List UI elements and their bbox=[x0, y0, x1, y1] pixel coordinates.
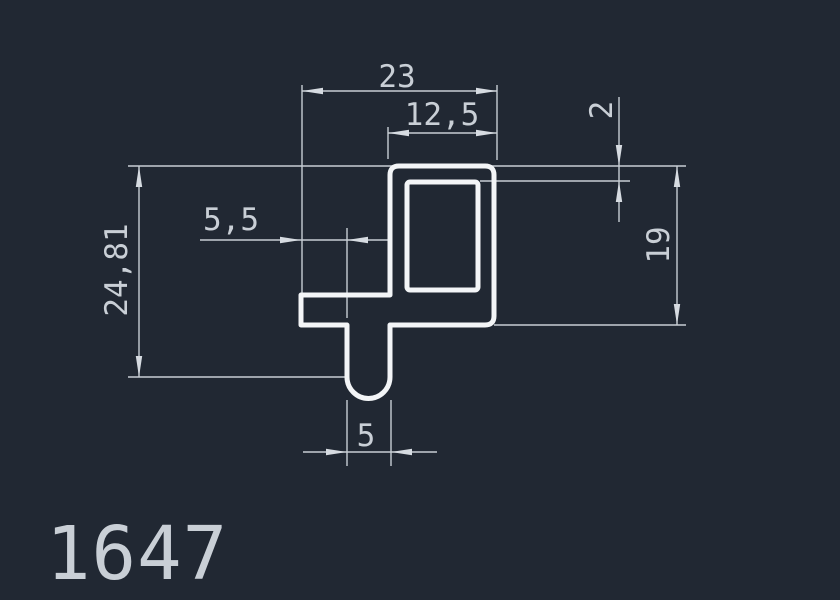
drawing-number: 1647 bbox=[46, 511, 228, 597]
dimension-label: 19 bbox=[641, 226, 677, 263]
dimension-wall-thickness: 2 bbox=[480, 97, 630, 222]
arrowhead-down bbox=[674, 304, 680, 325]
profile-outline bbox=[301, 166, 494, 399]
arrowhead-left bbox=[280, 237, 301, 243]
dimension-stem-width: 5 bbox=[303, 400, 437, 466]
dimension-label: 5,5 bbox=[203, 202, 259, 238]
technical-drawing-svg: 23 12,5 5,5 2 19 24,81 bbox=[0, 0, 840, 600]
arrowhead-right bbox=[347, 237, 368, 243]
arrowhead-right bbox=[476, 88, 497, 94]
dimension-label: 24,81 bbox=[99, 223, 135, 316]
arrowhead-left bbox=[391, 449, 412, 455]
arrowhead-down bbox=[616, 145, 622, 166]
dimension-label: 23 bbox=[378, 59, 415, 95]
dimension-total-height: 24,81 bbox=[99, 166, 142, 377]
dimension-label: 2 bbox=[584, 101, 620, 120]
arrowhead-up bbox=[674, 166, 680, 187]
cad-canvas: 23 12,5 5,5 2 19 24,81 bbox=[0, 0, 840, 600]
dimension-flag-width: 12,5 bbox=[388, 97, 497, 159]
dimension-arm-length: 5,5 bbox=[200, 202, 388, 318]
arrowhead-down bbox=[136, 356, 142, 377]
arrowhead-up bbox=[136, 166, 142, 187]
dimension-label: 12,5 bbox=[405, 97, 480, 133]
arrowhead-right bbox=[326, 449, 347, 455]
arrowhead-left bbox=[302, 88, 323, 94]
dimension-label: 5 bbox=[357, 418, 376, 454]
profile-inner-hole bbox=[407, 182, 478, 290]
arrowhead-up bbox=[616, 181, 622, 202]
profile bbox=[301, 166, 494, 399]
dimension-flag-height: 19 bbox=[641, 166, 680, 325]
